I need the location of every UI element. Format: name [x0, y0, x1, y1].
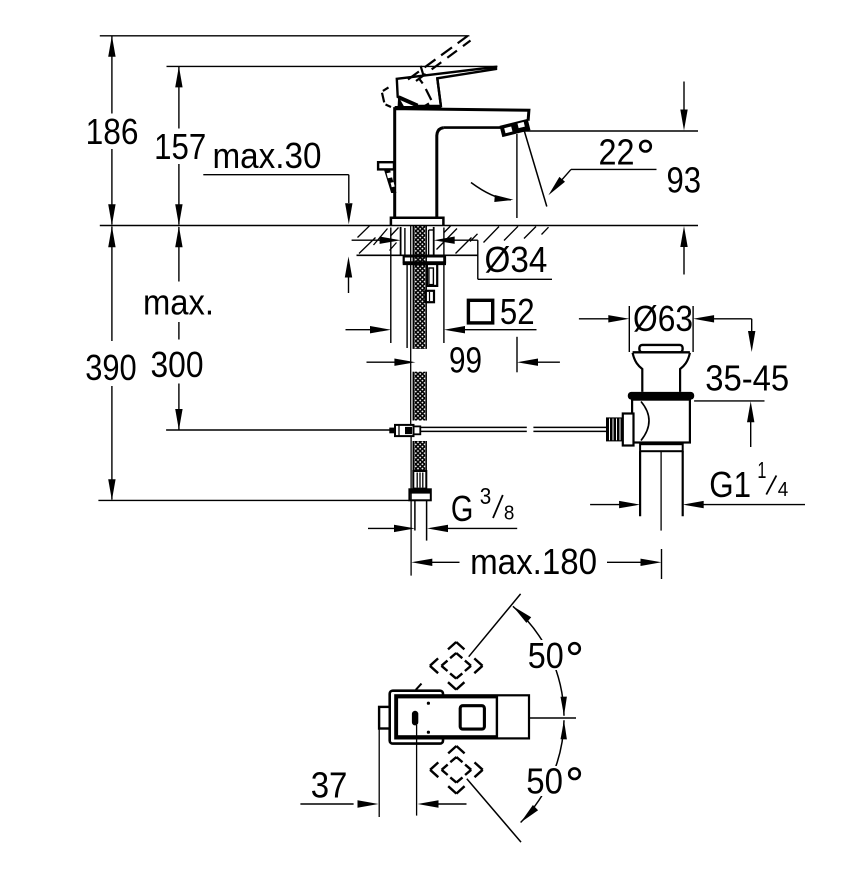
svg-text:35-45: 35-45 [705, 358, 789, 399]
svg-text:22: 22 [599, 132, 635, 173]
svg-text:99: 99 [449, 340, 482, 381]
svg-text:157: 157 [154, 126, 206, 167]
svg-text:93: 93 [667, 160, 702, 201]
svg-text:max.30: max.30 [213, 135, 322, 176]
svg-text:3: 3 [480, 483, 492, 509]
svg-text:52: 52 [500, 291, 535, 332]
svg-text:G1: G1 [709, 464, 751, 505]
svg-text:Ø63: Ø63 [633, 298, 693, 339]
svg-text:50: 50 [528, 635, 564, 676]
svg-text:50: 50 [526, 761, 563, 802]
svg-text:Ø34: Ø34 [485, 239, 548, 280]
svg-text:max.180: max.180 [470, 541, 597, 582]
svg-text:4: 4 [778, 479, 789, 501]
svg-text:max.: max. [143, 282, 214, 323]
svg-text:300: 300 [151, 344, 204, 385]
svg-text:186: 186 [86, 111, 139, 152]
svg-text:G: G [451, 488, 474, 529]
svg-text:1: 1 [757, 457, 766, 483]
svg-text:390: 390 [85, 347, 137, 388]
svg-text:8: 8 [504, 503, 515, 525]
svg-text:37: 37 [311, 764, 348, 805]
